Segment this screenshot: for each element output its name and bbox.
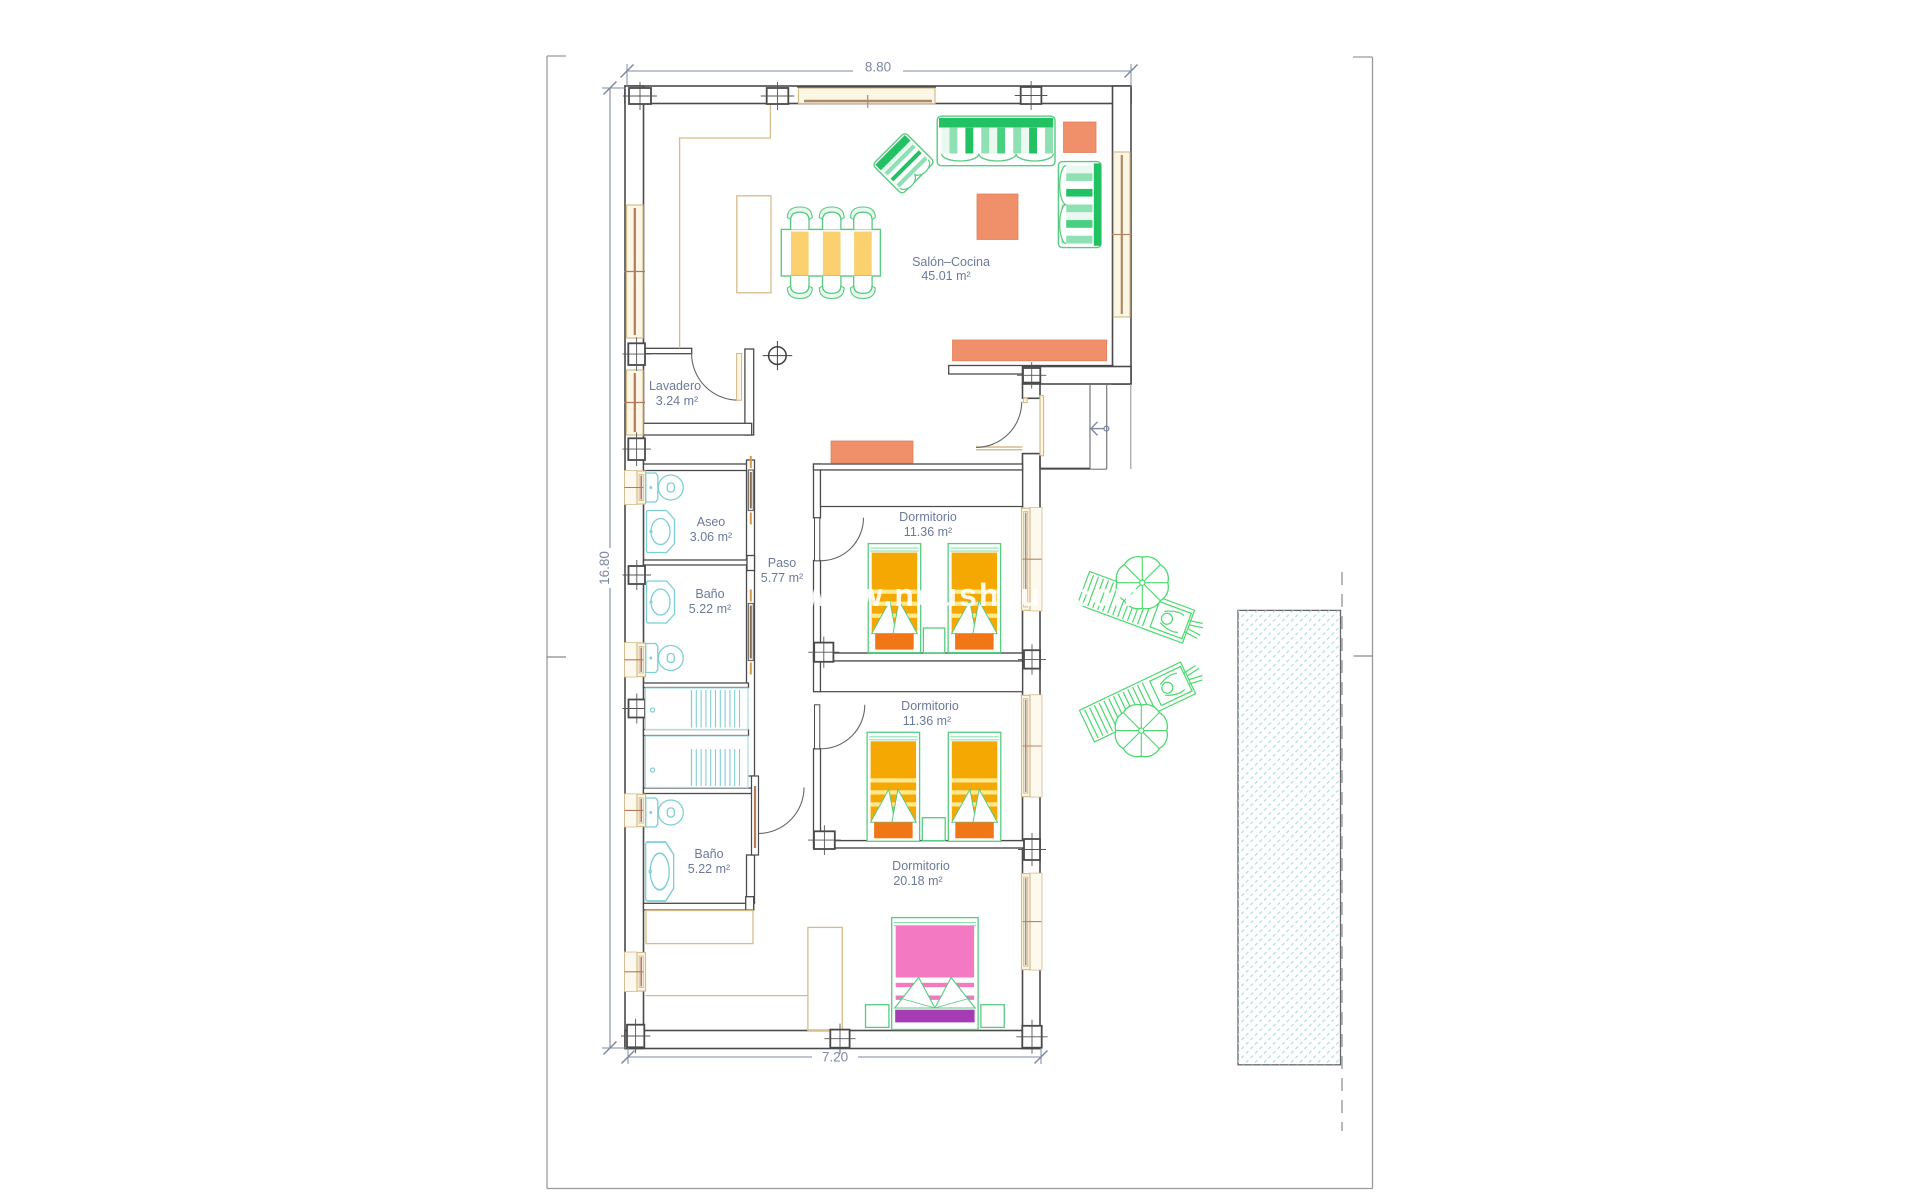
svg-text:16.80: 16.80 xyxy=(597,551,612,585)
svg-text:Aseo: Aseo xyxy=(697,515,726,529)
svg-text:3.24 m²: 3.24 m² xyxy=(656,394,698,408)
svg-text:5.77 m²: 5.77 m² xyxy=(761,571,803,585)
svg-text:Paso: Paso xyxy=(768,556,797,570)
svg-text:20.18 m²: 20.18 m² xyxy=(893,874,942,888)
svg-text:Dormitorio: Dormitorio xyxy=(901,699,959,713)
svg-text:Baño: Baño xyxy=(695,587,724,601)
svg-text:3.06 m²: 3.06 m² xyxy=(690,530,732,544)
svg-text:5.22 m²: 5.22 m² xyxy=(689,602,731,616)
svg-text:11.36 m²: 11.36 m² xyxy=(903,714,951,728)
svg-text:5.22 m²: 5.22 m² xyxy=(688,862,730,876)
svg-text:Baño: Baño xyxy=(694,847,723,861)
svg-text:Dormitorio: Dormitorio xyxy=(892,859,950,873)
svg-text:Lavadero: Lavadero xyxy=(649,379,701,393)
svg-text:8.80: 8.80 xyxy=(865,60,891,75)
svg-text:Dormitorio: Dormitorio xyxy=(899,510,957,524)
svg-text:11.36 m²: 11.36 m² xyxy=(904,525,952,539)
svg-text:7.20: 7.20 xyxy=(822,1050,848,1065)
svg-text:Salón–Cocina: Salón–Cocina xyxy=(912,255,990,269)
svg-text:45.01 m²: 45.01 m² xyxy=(921,269,970,283)
svg-text:www.noushaus.com: www.noushaus.com xyxy=(803,577,1144,613)
